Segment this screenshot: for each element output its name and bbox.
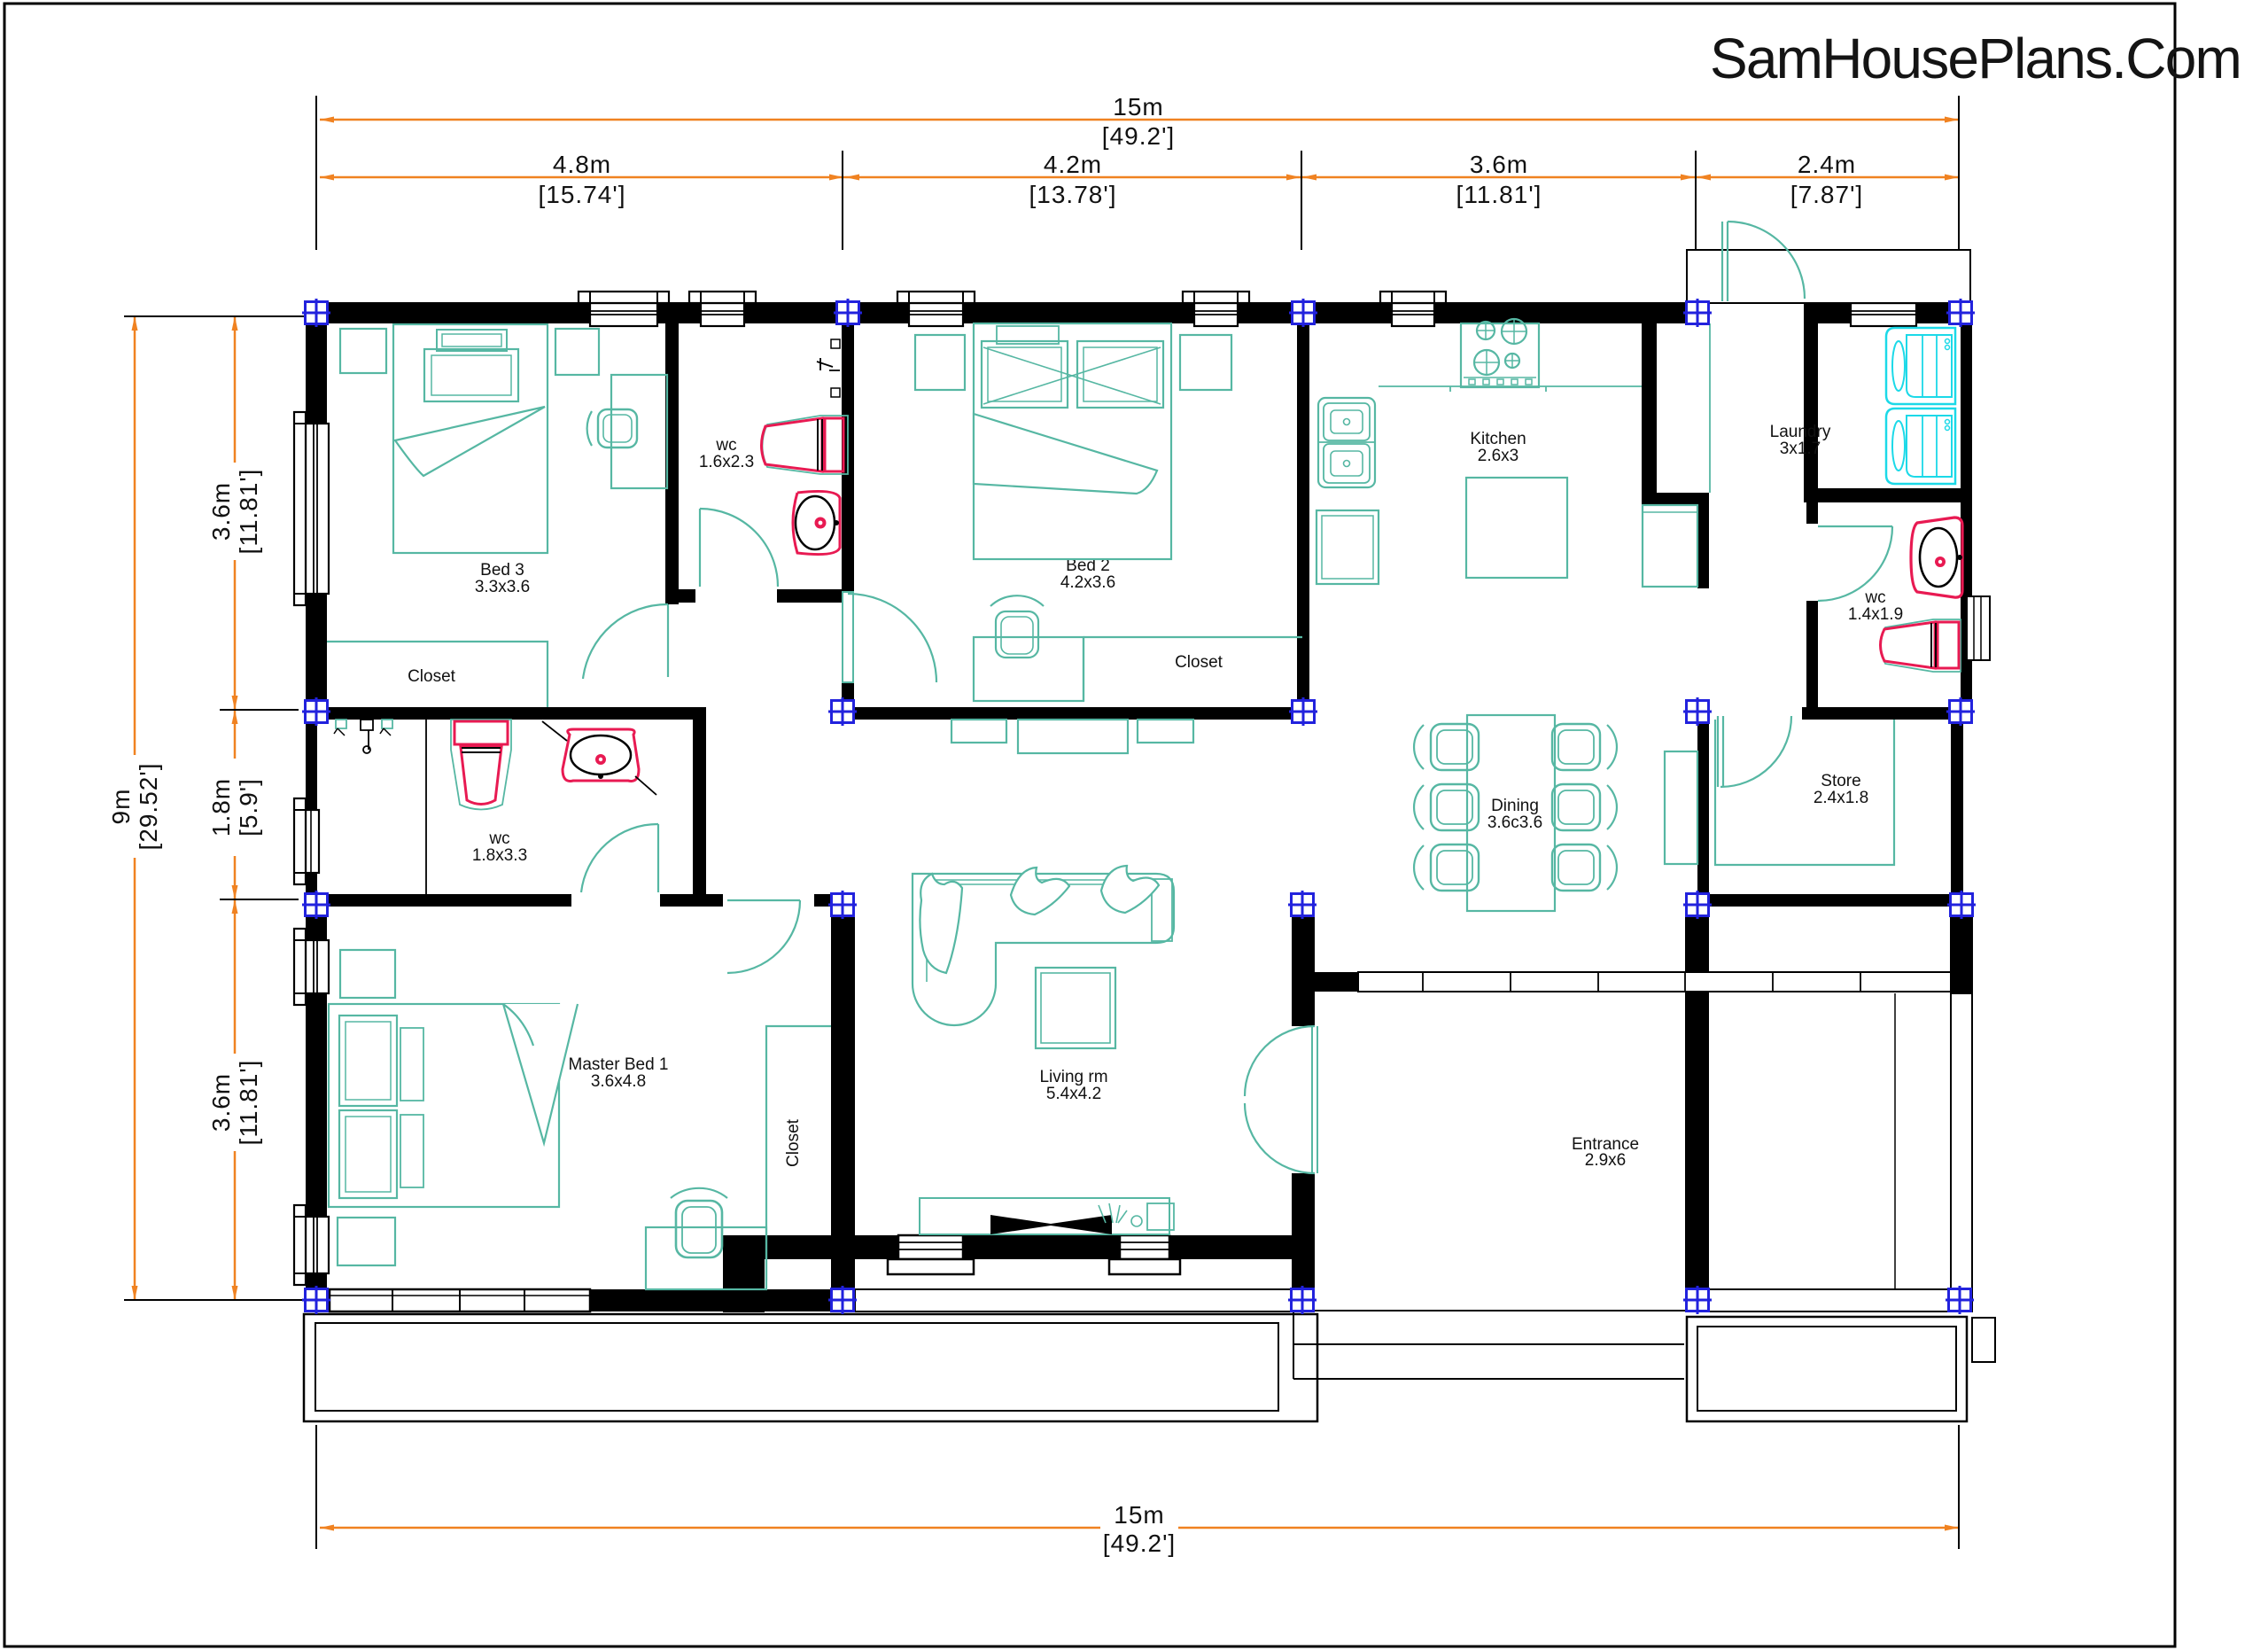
svg-text:3.6x4.8: 3.6x4.8 (591, 1072, 646, 1091)
svg-text:Closet: Closet (408, 667, 456, 686)
svg-text:3.6m: 3.6m (207, 1073, 235, 1132)
svg-text:Bed 3: Bed 3 (480, 561, 524, 580)
svg-text:[15.74']: [15.74'] (539, 181, 626, 208)
svg-text:2.9x6: 2.9x6 (1585, 1151, 1626, 1170)
svg-text:3.6m: 3.6m (1470, 151, 1528, 178)
svg-text:2.4x1.8: 2.4x1.8 (1814, 789, 1868, 807)
svg-text:15m: 15m (1114, 1501, 1164, 1529)
svg-text:[11.81']: [11.81'] (235, 469, 262, 555)
svg-text:3.6m: 3.6m (207, 482, 235, 541)
svg-text:Living rm: Living rm (1039, 1068, 1107, 1086)
svg-text:wc: wc (715, 436, 736, 455)
svg-text:[7.87']: [7.87'] (1790, 181, 1863, 208)
svg-text:15m: 15m (1113, 93, 1163, 121)
svg-text:4.8m: 4.8m (553, 151, 611, 178)
svg-text:9m: 9m (107, 789, 135, 825)
svg-text:3x1.7: 3x1.7 (1780, 440, 1821, 458)
svg-text:2.6x3: 2.6x3 (1478, 447, 1518, 465)
svg-text:Laundry: Laundry (1770, 423, 1831, 441)
svg-text:1.4x1.9: 1.4x1.9 (1848, 605, 1903, 624)
svg-text:wc: wc (1864, 588, 1885, 607)
svg-text:[13.78']: [13.78'] (1029, 181, 1117, 208)
svg-text:Dining: Dining (1491, 797, 1539, 815)
svg-text:[49.2']: [49.2'] (1103, 1529, 1176, 1557)
svg-text:4.2m: 4.2m (1044, 151, 1102, 178)
svg-text:Store: Store (1821, 772, 1860, 790)
svg-text:1.8x3.3: 1.8x3.3 (472, 846, 527, 865)
svg-text:Closet: Closet (1175, 653, 1223, 672)
svg-text:1.6x2.3: 1.6x2.3 (699, 453, 754, 471)
svg-text:3.6c3.6: 3.6c3.6 (1487, 813, 1542, 832)
svg-text:[11.81']: [11.81'] (235, 1060, 262, 1146)
svg-text:1.8m: 1.8m (207, 778, 235, 837)
svg-text:Master Bed 1: Master Bed 1 (569, 1055, 669, 1074)
svg-text:[49.2']: [49.2'] (1102, 122, 1175, 150)
svg-text:[5.9']: [5.9'] (235, 778, 262, 837)
svg-text:2.4m: 2.4m (1798, 151, 1856, 178)
svg-text:4.2x3.6: 4.2x3.6 (1060, 573, 1115, 592)
svg-text:3.3x3.6: 3.3x3.6 (475, 578, 530, 596)
svg-text:[11.81']: [11.81'] (1456, 181, 1542, 208)
svg-text:wc: wc (488, 829, 509, 848)
svg-text:Closet: Closet (784, 1118, 803, 1167)
svg-text:5.4x4.2: 5.4x4.2 (1046, 1085, 1101, 1103)
svg-text:[29.52']: [29.52'] (135, 763, 162, 851)
svg-text:Kitchen: Kitchen (1470, 430, 1526, 448)
svg-text:SamHousePlans.Com: SamHousePlans.Com (1710, 27, 2241, 90)
